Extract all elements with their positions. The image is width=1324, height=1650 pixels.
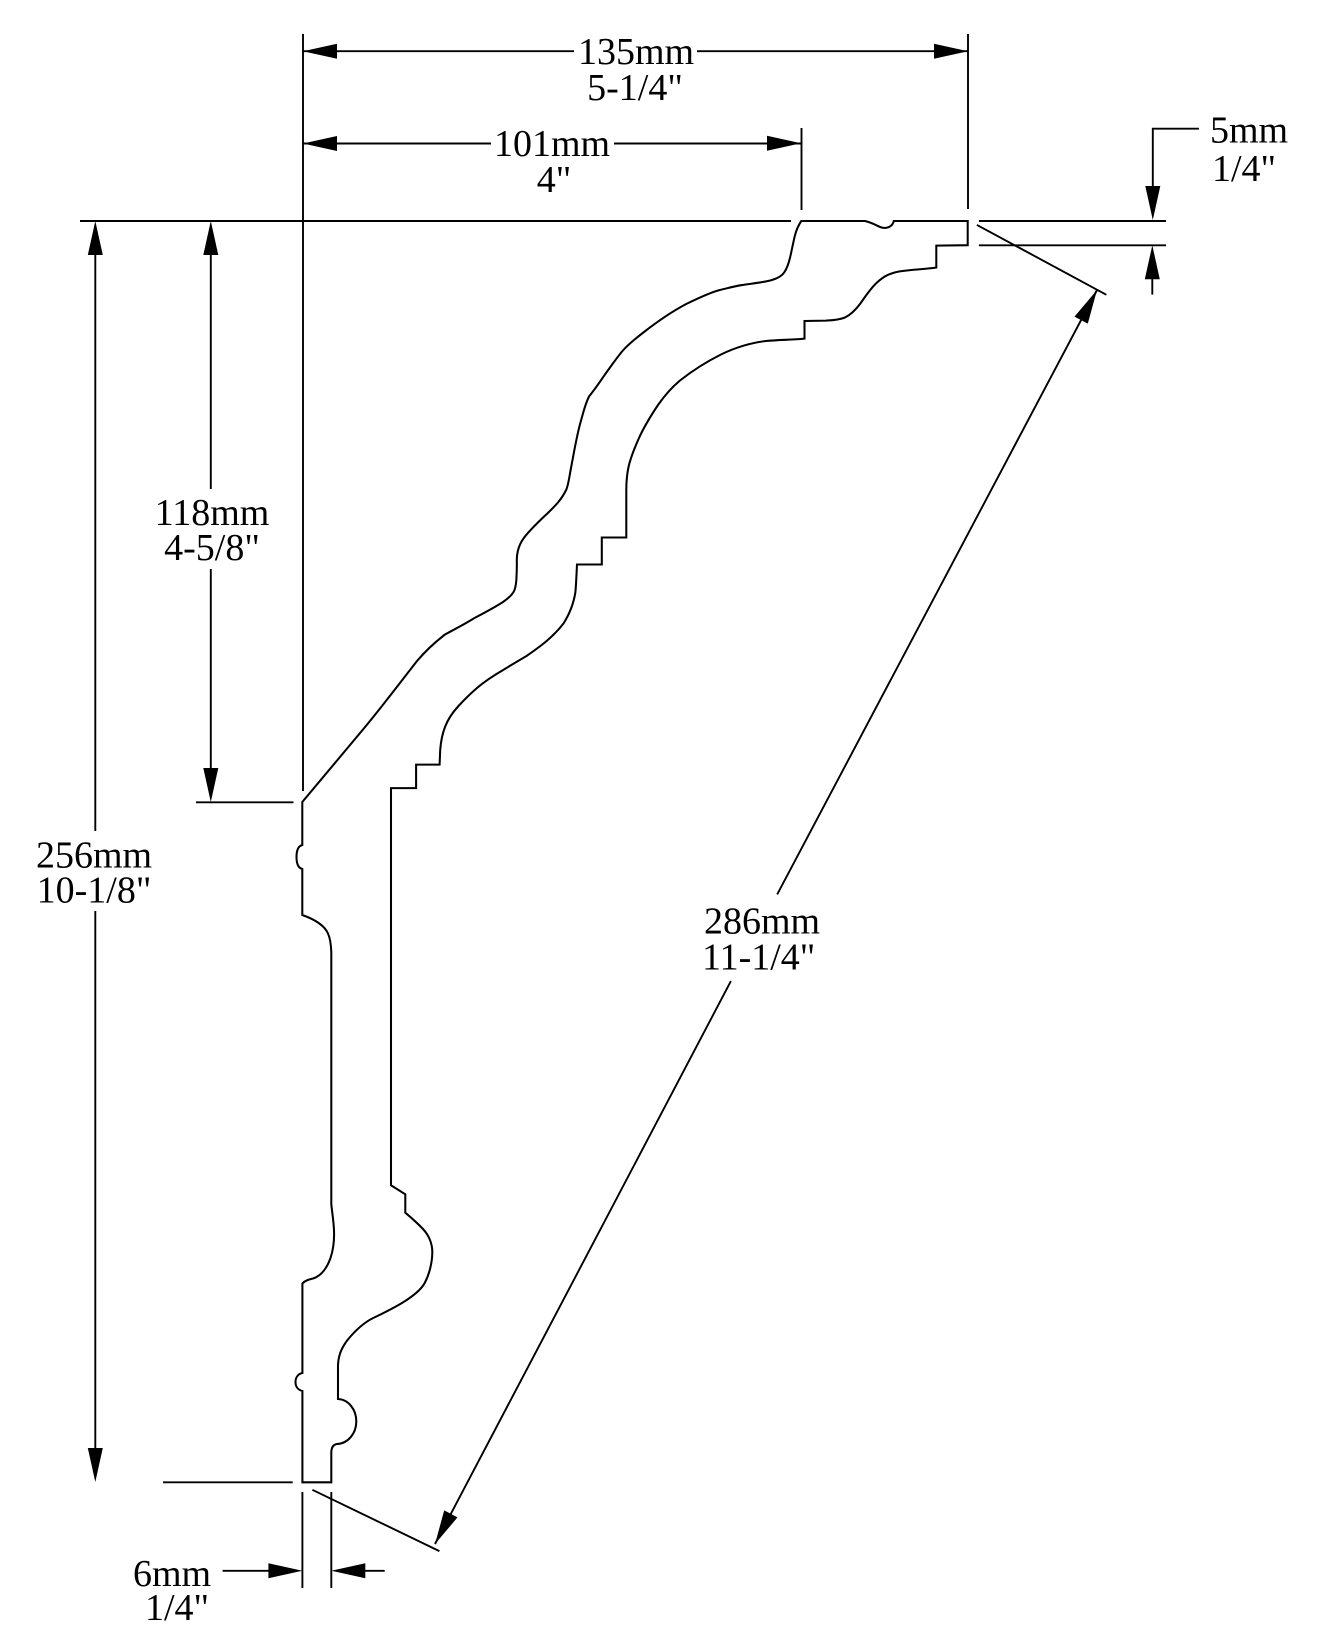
svg-text:5-1/4": 5-1/4" <box>587 67 683 109</box>
svg-text:1/4": 1/4" <box>1212 148 1276 190</box>
svg-text:1/4": 1/4" <box>145 1587 209 1629</box>
svg-text:11-1/4": 11-1/4" <box>702 937 815 979</box>
svg-text:5mm: 5mm <box>1210 110 1288 152</box>
svg-text:4-5/8": 4-5/8" <box>164 527 260 569</box>
svg-text:4": 4" <box>537 159 572 201</box>
svg-text:10-1/8": 10-1/8" <box>37 870 152 912</box>
